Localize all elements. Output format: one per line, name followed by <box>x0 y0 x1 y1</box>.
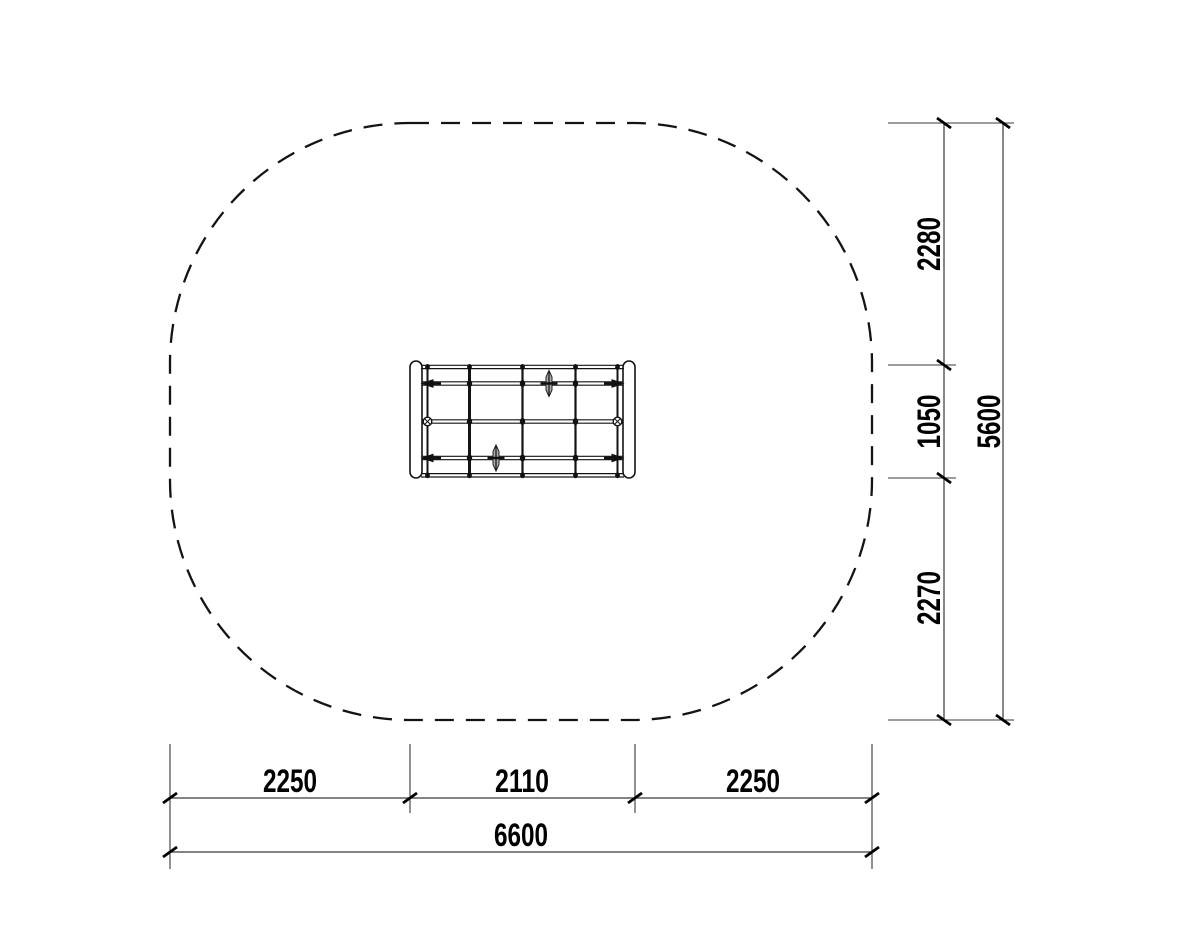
anchor-cross-lower <box>488 445 505 471</box>
equipment-plan <box>410 361 635 478</box>
dim-label-right-segment-1: 2280 <box>911 217 947 271</box>
dim-label-bottom-segment-2: 2110 <box>495 763 549 799</box>
plan-drawing: 2280 1050 2270 5600 2250 2110 2250 6600 <box>0 0 1200 938</box>
dim-label-right-total: 5600 <box>971 395 1007 449</box>
dim-label-right-segment-3: 2270 <box>911 571 947 625</box>
drawing-sheet: 2280 1050 2270 5600 2250 2110 2250 6600 <box>0 0 1200 938</box>
dim-label-bottom-segment-3: 2250 <box>726 763 780 799</box>
dim-label-right-segment-2: 1050 <box>911 395 947 449</box>
equipment-right-post <box>623 361 635 478</box>
connector-nodes <box>425 364 620 478</box>
equipment-left-post <box>410 361 422 478</box>
dim-label-bottom-total: 6600 <box>494 817 548 853</box>
bottom-dimension-group: 2250 2110 2250 6600 <box>163 744 879 869</box>
dim-label-bottom-segment-1: 2250 <box>263 763 317 799</box>
right-dimension-group: 2280 1050 2270 5600 <box>888 118 1014 725</box>
anchor-cross-upper <box>541 371 558 397</box>
